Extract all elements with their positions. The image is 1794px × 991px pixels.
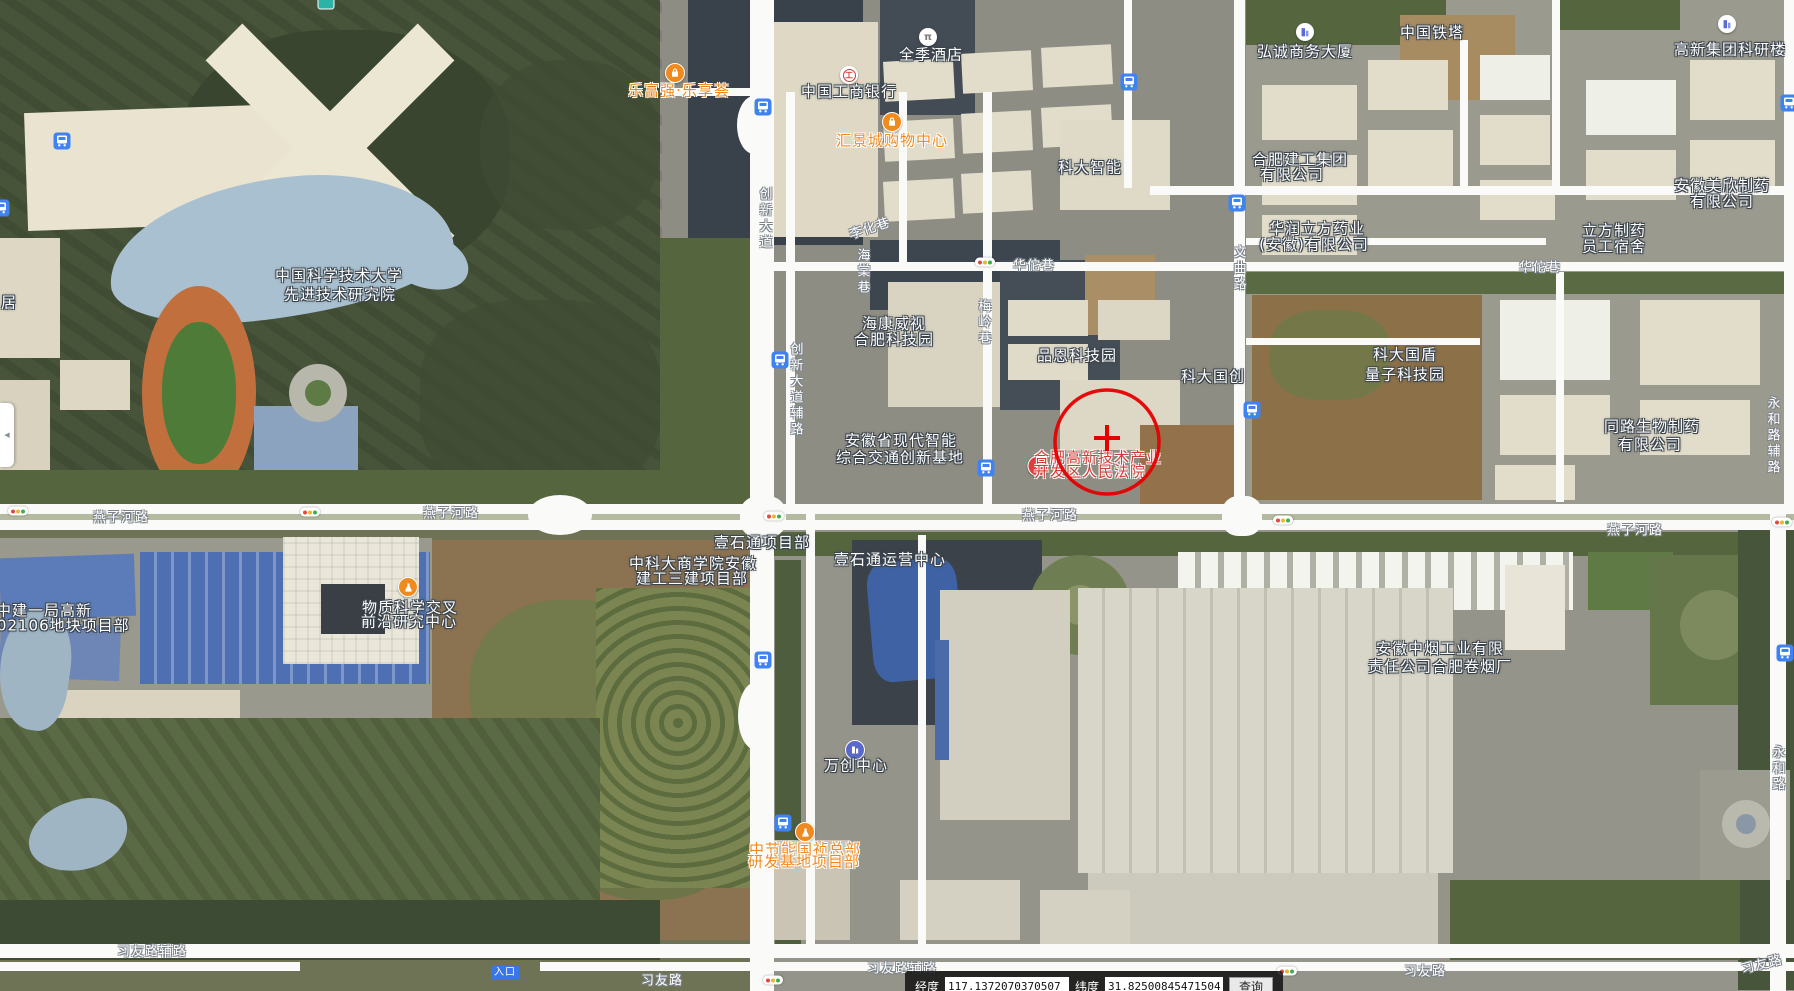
terrain-patch — [1098, 300, 1170, 340]
search-button[interactable]: 查询 — [1229, 977, 1273, 991]
terrain-patch — [40, 690, 240, 718]
road — [738, 682, 774, 750]
poi-label[interactable]: 中国工商银行 — [801, 85, 897, 100]
terrain-patch — [1480, 115, 1550, 165]
road-label: 梅岭巷 — [977, 299, 990, 347]
poi-label[interactable]: 同路生物制药 — [1604, 420, 1700, 435]
terrain-patch — [1736, 814, 1756, 834]
terrain-patch — [1500, 395, 1610, 455]
poi-icon[interactable] — [318, 0, 335, 10]
poi-label[interactable]: 科大国盾 — [1373, 348, 1437, 363]
poi-label[interactable]: 高新集团科研楼 — [1674, 43, 1786, 58]
terrain-patch — [60, 360, 130, 410]
bus-stop-icon[interactable] — [1229, 195, 1246, 212]
shopping-bag-icon[interactable] — [882, 112, 902, 132]
road — [0, 962, 300, 971]
poi-label[interactable]: 中国科学技术大学 — [275, 269, 403, 284]
bus-stop-icon[interactable] — [978, 460, 995, 477]
poi-label[interactable]: 安徽美欣制药 — [1674, 179, 1770, 194]
poi-label[interactable]: 万创中心 — [824, 759, 888, 774]
road-label: 燕子河路 — [1022, 510, 1078, 523]
poi-label[interactable]: 责任公司合肥卷烟厂 — [1368, 660, 1512, 675]
road-label: 燕子河路 — [93, 512, 149, 525]
road-label: 燕子河路 — [423, 508, 479, 521]
terrain-patch — [305, 380, 331, 406]
poi-label[interactable]: 202106地块项目部 — [0, 619, 130, 634]
traffic-light-icon — [1273, 516, 1293, 525]
poi-label[interactable]: 华润立方药业 — [1269, 222, 1365, 237]
road-label: 永和路 — [1771, 745, 1784, 793]
panel-collapse-button[interactable]: ◀ — [0, 403, 14, 467]
poi-label[interactable]: 汇景城购物中心 — [836, 134, 948, 149]
road-label: 燕子河路 — [1607, 525, 1663, 538]
bus-stop-icon[interactable] — [772, 352, 789, 369]
road — [1460, 40, 1468, 188]
poi-label[interactable]: 量子科技园 — [1365, 368, 1445, 383]
poi-label[interactable]: 有限公司 — [1690, 195, 1754, 210]
bus-stop-icon[interactable] — [755, 652, 772, 669]
terrain-patch — [961, 110, 1033, 154]
road-label: 文曲路 — [1232, 245, 1245, 293]
traffic-light-icon — [764, 512, 784, 521]
terrain-patch — [0, 470, 760, 506]
poi-label[interactable]: 研发基地项目部 — [748, 855, 860, 870]
terrain-patch — [1505, 565, 1565, 650]
poi-label[interactable]: 中国铁塔 — [1400, 26, 1464, 41]
terrain-patch — [1368, 60, 1448, 110]
building-icon[interactable] — [1296, 23, 1314, 41]
traffic-light-icon — [1772, 518, 1792, 527]
terrain-patch — [1690, 60, 1775, 120]
poi-label[interactable]: 壹石通运营中心 — [834, 553, 946, 568]
road-label: 华佗巷 — [1519, 262, 1561, 275]
traffic-light-icon — [300, 508, 320, 517]
poi-label[interactable]: 员工宿舍 — [1582, 240, 1646, 255]
road — [0, 944, 1794, 958]
road — [1246, 338, 1480, 345]
poi-label[interactable]: 前沿研究中心 — [361, 615, 457, 630]
terrain-patch — [1040, 890, 1130, 945]
terrain-patch — [660, 238, 752, 470]
terrain-patch — [961, 170, 1033, 214]
shopping-bag-icon[interactable] — [665, 63, 685, 83]
terrain-patch — [596, 588, 760, 888]
lab-flask-icon[interactable] — [398, 577, 418, 597]
road-label: 永和路辅路 — [1766, 396, 1779, 476]
road — [752, 262, 1794, 271]
terrain-patch — [940, 590, 1070, 820]
road — [786, 92, 795, 505]
terrain-patch — [935, 640, 949, 760]
terrain-patch — [766, 22, 878, 237]
road-label: 海棠巷 — [856, 248, 869, 296]
poi-label[interactable]: 立方制药 — [1582, 224, 1646, 239]
terrain-patch — [1500, 300, 1610, 380]
bus-stop-icon[interactable] — [1777, 645, 1794, 662]
bus-stop-icon[interactable] — [775, 815, 792, 832]
road-label: 创新大道 — [758, 187, 771, 251]
road-label: 习友路 — [1404, 966, 1446, 979]
latitude-label: 纬度 — [1075, 978, 1099, 991]
road-label: 习友路辅路 — [117, 946, 187, 959]
building-icon[interactable] — [1718, 15, 1736, 33]
road — [806, 505, 815, 955]
bus-stop-icon[interactable] — [54, 133, 71, 150]
traffic-light-icon — [975, 258, 995, 267]
road — [1552, 0, 1560, 188]
poi-label[interactable]: 乐富强·乐享荟 — [628, 84, 730, 99]
terrain-patch — [1560, 0, 1680, 30]
poi-label[interactable]: (安徽)有限公司 — [1259, 238, 1369, 253]
entrance-badge: 入口 — [491, 966, 519, 980]
poi-label[interactable]: 弘诚商务大厦 — [1257, 45, 1353, 60]
road-label: 习友路 — [641, 975, 683, 988]
poi-label[interactable]: 合肥科技园 — [854, 333, 934, 348]
terrain-patch — [1368, 130, 1453, 190]
terrain-patch — [1078, 588, 1453, 873]
bus-stop-icon[interactable] — [755, 99, 772, 116]
road-label: 华佗巷 — [1013, 260, 1055, 273]
road — [1784, 0, 1794, 505]
bus-stop-icon[interactable] — [1244, 402, 1261, 419]
road — [1124, 0, 1132, 188]
terrain-patch — [1480, 55, 1550, 100]
longitude-label: 经度 — [915, 978, 939, 991]
road-label: 创新大道辅路 — [789, 342, 802, 438]
poi-label[interactable]: 居 — [1, 296, 17, 311]
road — [0, 514, 1794, 520]
poi-label[interactable]: 科大国创 — [1181, 370, 1245, 385]
poi-label[interactable]: 壹石通项目部 — [714, 536, 810, 551]
traffic-light-icon — [8, 507, 28, 516]
road — [918, 535, 926, 945]
terrain-patch — [961, 50, 1033, 94]
road — [1556, 272, 1564, 502]
road — [1222, 496, 1262, 536]
poi-label[interactable]: 海康威视 — [862, 317, 926, 332]
terrain-patch — [1088, 873, 1438, 948]
poi-label[interactable]: 有限公司 — [1260, 168, 1324, 183]
poi-label[interactable]: 品恩科技园 — [1037, 349, 1117, 364]
lab-flask-icon[interactable] — [795, 822, 815, 842]
court-poi-label[interactable]: 开发区人民法院 — [1034, 465, 1146, 480]
coordinate-bar: 经度 纬度 查询 — [905, 971, 1283, 991]
poi-label[interactable]: 科大智能 — [1058, 161, 1122, 176]
poi-label[interactable]: 安徽中烟工业有限 — [1376, 642, 1504, 657]
bus-stop-icon[interactable] — [1121, 74, 1138, 91]
traffic-light-icon — [763, 976, 783, 985]
poi-label[interactable]: 建工三建项目部 — [636, 572, 748, 587]
road — [528, 495, 592, 535]
terrain-patch — [1008, 300, 1088, 336]
road — [540, 962, 1794, 971]
map-canvas[interactable]: 中国科学技术大学先进技术研究院中国工商银行全季酒店科大智能弘诚商务大厦中国铁塔高… — [0, 0, 1794, 991]
poi-label[interactable]: 有限公司 — [1618, 438, 1682, 453]
terrain-patch — [1262, 85, 1357, 140]
poi-label[interactable]: 安徽省现代智能 — [845, 434, 957, 449]
latitude-input[interactable] — [1105, 977, 1223, 991]
longitude-input[interactable] — [945, 977, 1069, 991]
terrain-patch — [1640, 300, 1760, 385]
terrain-patch — [1586, 80, 1676, 135]
bus-stop-icon[interactable] — [1781, 95, 1794, 112]
bus-stop-icon[interactable] — [0, 200, 10, 217]
poi-label[interactable]: 综合交通创新基地 — [836, 451, 964, 466]
terrain-patch — [162, 322, 236, 464]
terrain-patch — [883, 178, 955, 222]
bank-icon[interactable]: 工 — [840, 66, 858, 84]
terrain-patch — [1041, 44, 1113, 88]
collapse-arrow-icon: ◀ — [4, 431, 9, 439]
hotel-icon[interactable]: π — [919, 28, 937, 46]
poi-label[interactable]: 先进技术研究院 — [284, 288, 396, 303]
poi-label[interactable]: 全季酒店 — [899, 48, 963, 63]
